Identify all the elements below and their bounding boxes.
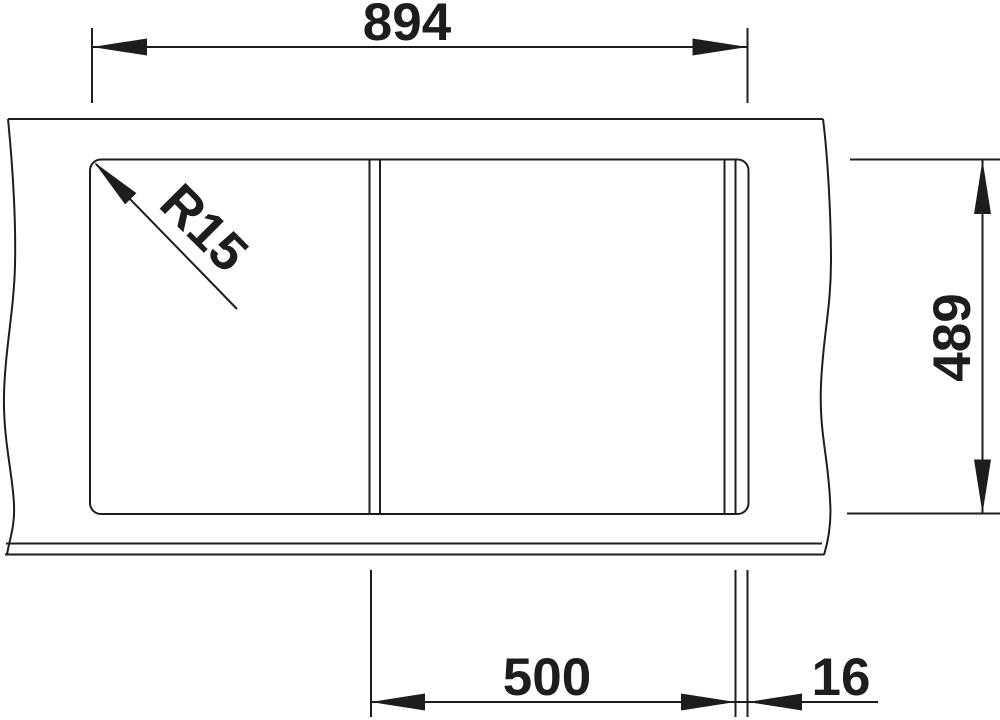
radius-label: R15 bbox=[149, 173, 259, 283]
arrow-right-icon bbox=[681, 694, 736, 711]
technical-drawing-page: 894 R15 489 500 16 bbox=[0, 0, 1000, 720]
arrow-left-icon bbox=[371, 694, 425, 711]
dimension-bottom: 500 16 bbox=[371, 570, 878, 717]
arrow-up-left-icon bbox=[94, 162, 136, 204]
sink-technical-drawing: 894 R15 489 500 16 bbox=[0, 0, 1000, 720]
arrow-left-icon bbox=[92, 39, 147, 56]
sink-outline bbox=[4, 119, 831, 555]
dimension-right: 489 bbox=[847, 160, 1000, 514]
dim-top-label: 894 bbox=[363, 0, 452, 52]
dim-right-label: 489 bbox=[923, 293, 982, 381]
dimension-top: 894 bbox=[92, 0, 748, 103]
right-break-line bbox=[821, 119, 831, 555]
radius-callout: R15 bbox=[94, 162, 259, 309]
left-break-line bbox=[4, 119, 15, 555]
arrow-left-small-icon bbox=[748, 694, 803, 711]
arrow-right-icon bbox=[693, 39, 748, 56]
arrow-down-icon bbox=[974, 460, 991, 514]
arrow-up-icon bbox=[974, 160, 991, 214]
dim-bottom-left-label: 500 bbox=[503, 648, 591, 707]
dim-bottom-right-label: 16 bbox=[812, 648, 871, 707]
